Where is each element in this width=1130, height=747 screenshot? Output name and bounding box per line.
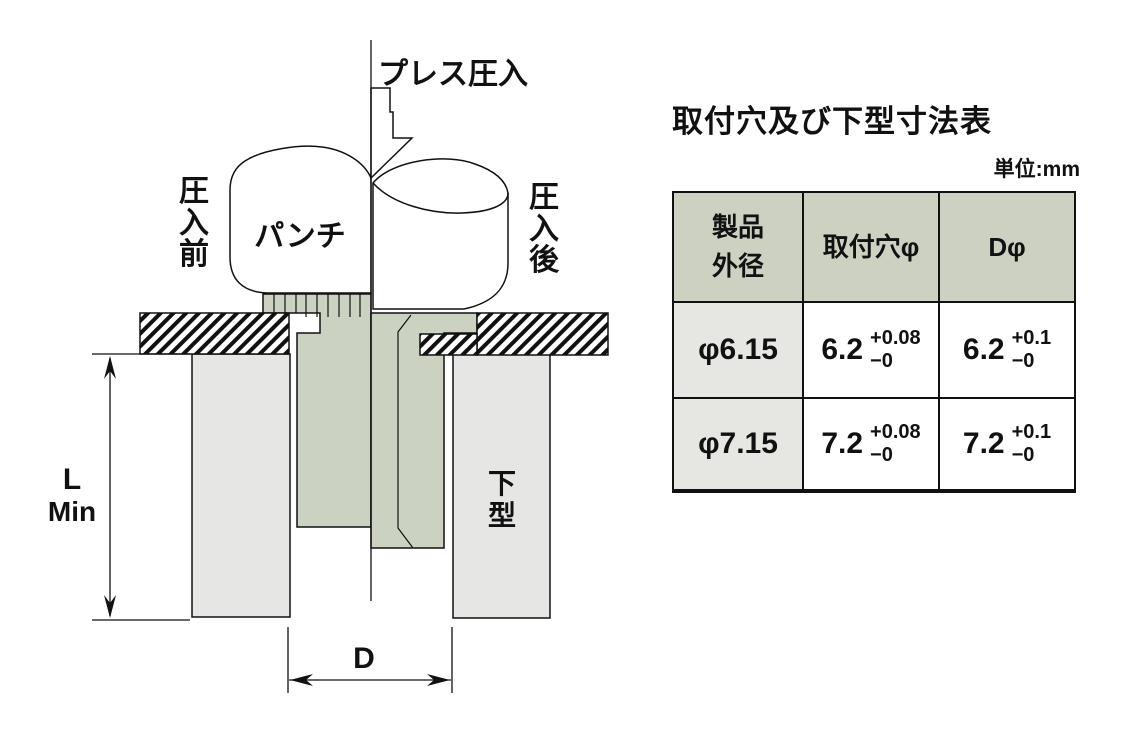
sheet-plate-right <box>477 313 608 355</box>
before-label-char-1: 圧 <box>179 175 209 208</box>
table-row: φ7.15 7.2 +0.08 −0 7.2 +0.1 <box>673 398 1075 491</box>
press-arrow-label: プレス圧入 <box>378 58 528 91</box>
punch-after-shape <box>373 159 508 309</box>
mounting-hole-value-cell: 7.2 +0.08 −0 <box>803 398 939 491</box>
punch-label: パンチ <box>254 220 346 253</box>
dim-l-label-line1: L <box>63 463 81 496</box>
d-tolerance: +0.1 −0 <box>1012 421 1051 467</box>
header-product-line2: 外径 <box>674 247 802 286</box>
sheet-plate-left <box>140 313 289 354</box>
press-fit-diagram: プレス圧入 パンチ 圧 入 前 圧 入 後 下 型 L Min D <box>0 0 660 747</box>
dimension-table: 製品 外径 取付穴φ Dφ φ6.15 6.2 +0.08 −0 <box>672 191 1076 493</box>
after-label-char-1: 圧 <box>529 181 559 214</box>
d-value: 7.2 <box>963 427 1005 461</box>
mounting-hole-value-cell: 6.2 +0.08 −0 <box>803 302 939 398</box>
press-fit-instruction-figure: プレス圧入 パンチ 圧 入 前 圧 入 後 下 型 L Min D 取付穴及び下… <box>0 0 1130 747</box>
outer-dia-value: φ7.15 <box>673 398 803 491</box>
table-header-row: 製品 外径 取付穴φ Dφ <box>673 192 1075 302</box>
d-tol-plus: +0.1 <box>1012 327 1051 350</box>
hole-tol-plus: +0.08 <box>870 327 921 350</box>
d-tol-minus: −0 <box>1012 350 1035 373</box>
after-label-char-2: 入 <box>529 213 559 246</box>
header-d-dia: Dφ <box>939 192 1075 302</box>
d-tolerance: +0.1 −0 <box>1012 327 1051 373</box>
unit-note: 単位:mm <box>672 153 1084 183</box>
d-tol-minus: −0 <box>1012 444 1035 467</box>
d-value-cell: 6.2 +0.1 −0 <box>939 302 1075 398</box>
d-value: 6.2 <box>963 333 1005 367</box>
hole-tolerance: +0.08 −0 <box>870 327 921 373</box>
dimension-table-panel: 取付穴及び下型寸法表 単位:mm 製品 外径 取付穴φ Dφ φ6.15 6.2… <box>672 96 1084 493</box>
hole-value: 6.2 <box>821 333 863 367</box>
lower-die-left-block <box>192 354 290 617</box>
header-mounting-hole: 取付穴φ <box>803 192 939 302</box>
lower-die-label-char-1: 下 <box>488 468 516 499</box>
hole-tolerance: +0.08 −0 <box>870 421 921 467</box>
before-label-char-2: 入 <box>179 207 209 240</box>
hole-tol-minus: −0 <box>870 444 893 467</box>
before-label-char-3: 前 <box>179 238 209 271</box>
lower-die-label-char-2: 型 <box>488 500 516 531</box>
after-label-char-3: 後 <box>529 244 560 277</box>
dim-d-label: D <box>353 642 375 675</box>
outer-dia-value: φ6.15 <box>673 302 803 398</box>
header-product-outer-dia: 製品 外径 <box>673 192 803 302</box>
hole-value: 7.2 <box>821 427 863 461</box>
header-product-line1: 製品 <box>674 208 802 247</box>
d-tol-plus: +0.1 <box>1012 421 1051 444</box>
d-value-cell: 7.2 +0.1 −0 <box>939 398 1075 491</box>
table-title: 取付穴及び下型寸法表 <box>672 96 1084 141</box>
sheet-plate-right-step <box>420 334 477 355</box>
table-row: φ6.15 6.2 +0.08 −0 6.2 +0.1 <box>673 302 1075 398</box>
dim-l-label-line2: Min <box>48 496 96 527</box>
hole-tol-plus: +0.08 <box>870 421 921 444</box>
hole-tol-minus: −0 <box>870 350 893 373</box>
